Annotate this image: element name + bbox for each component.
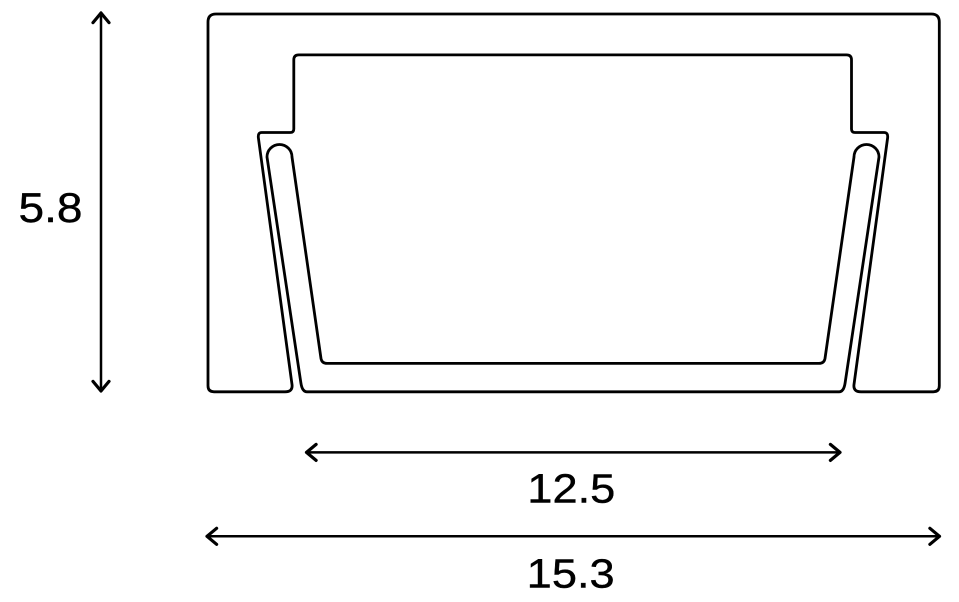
svg-text:5.8: 5.8 <box>19 184 83 231</box>
svg-text:12.5: 12.5 <box>527 466 615 512</box>
svg-text:15.3: 15.3 <box>527 550 615 596</box>
